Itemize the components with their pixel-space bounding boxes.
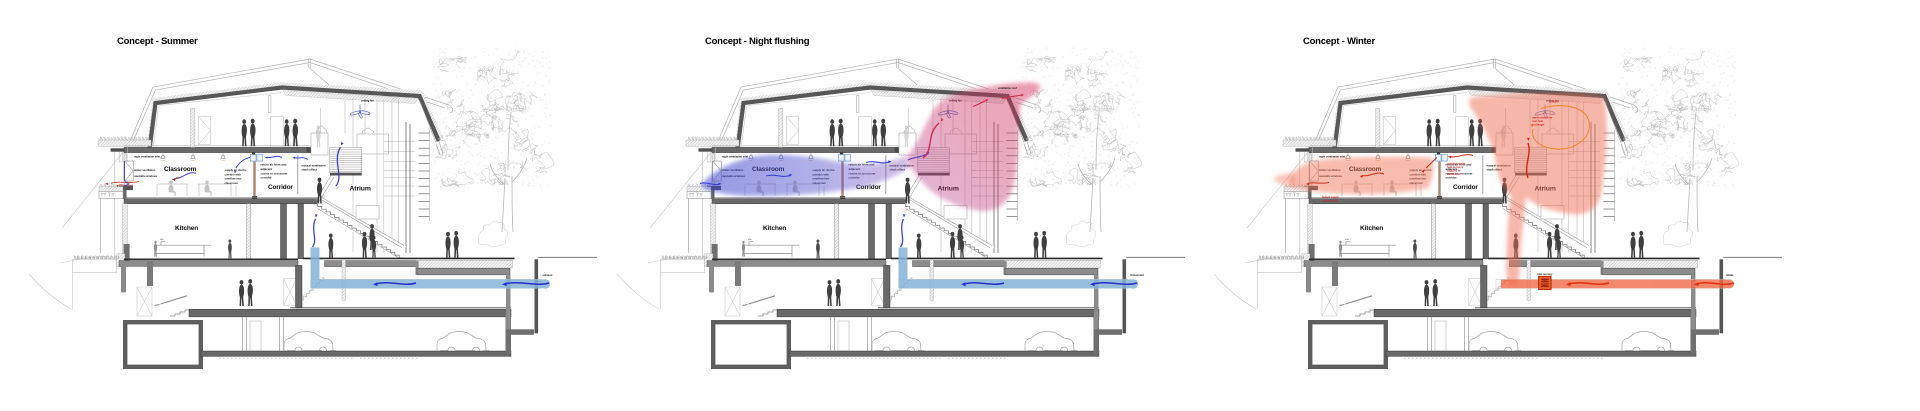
- svg-text:Concept - Winter: Concept - Winter: [1303, 36, 1375, 47]
- svg-text:intake: intake: [1726, 273, 1734, 277]
- svg-text:Concept - Night flushing: Concept - Night flushing: [705, 36, 810, 47]
- svg-text:ventilation roof: ventilation roof: [998, 86, 1017, 90]
- svg-text:Exhausted: Exhausted: [1131, 273, 1145, 277]
- svg-text:exhaust: exhaust: [543, 273, 553, 277]
- svg-text:heated supply: heated supply: [1322, 196, 1339, 199]
- svg-text:Concept - Summer: Concept - Summer: [117, 36, 198, 47]
- svg-text:heat recovery: heat recovery: [1538, 273, 1554, 276]
- svg-text:the rooms: the rooms: [1447, 173, 1460, 176]
- svg-text:exhaust: exhaust: [1549, 101, 1559, 104]
- svg-text:exchanger: exchanger: [1532, 124, 1545, 127]
- svg-text:to classroom: to classroom: [1322, 200, 1338, 203]
